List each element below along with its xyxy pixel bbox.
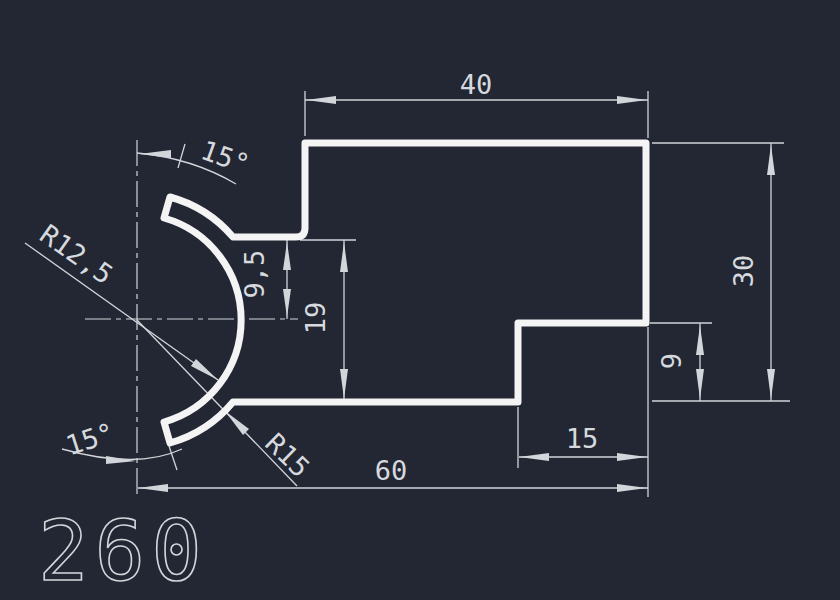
dim-label-9: 9 bbox=[656, 353, 687, 369]
dim-label-30: 30 bbox=[728, 255, 759, 288]
dim-label-19: 19 bbox=[300, 302, 331, 335]
dim-label-40: 40 bbox=[460, 69, 493, 100]
cad-drawing: 40 30 9 19 9,5 15 bbox=[0, 0, 840, 600]
part-number: 260 bbox=[38, 502, 208, 600]
dim-label-60: 60 bbox=[375, 455, 408, 486]
dim-label-9-5: 9,5 bbox=[239, 250, 270, 299]
cad-drawing-canvas: 40 30 9 19 9,5 15 bbox=[0, 0, 840, 600]
dim-label-15: 15 bbox=[566, 423, 599, 454]
